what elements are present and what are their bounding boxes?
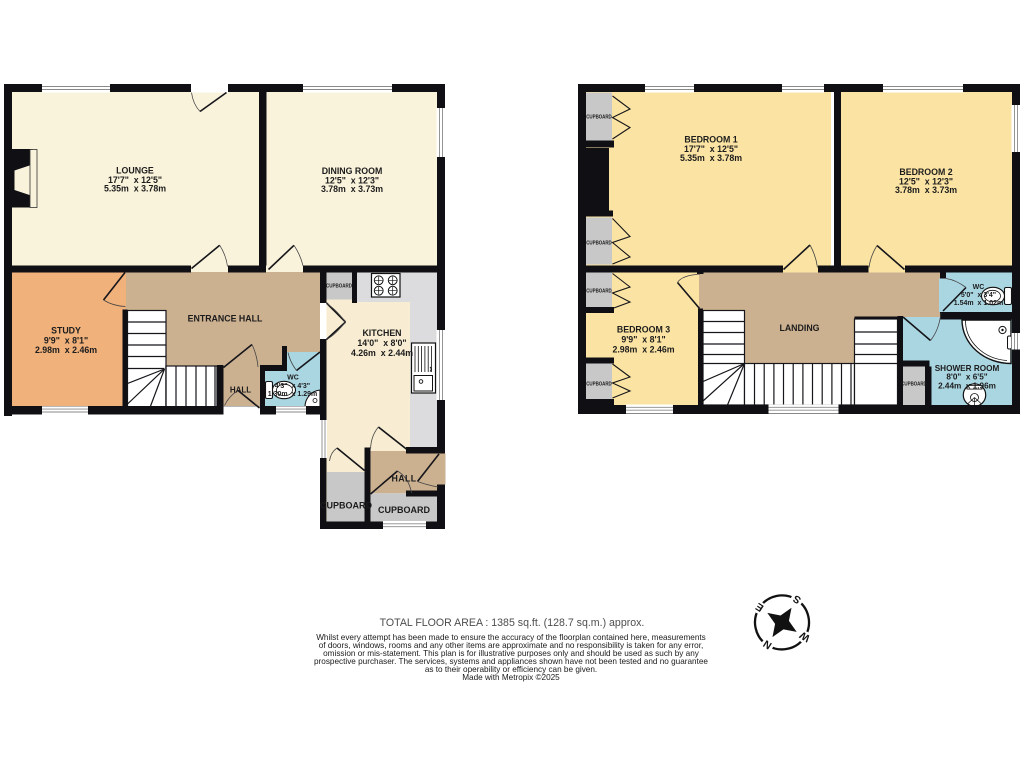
svg-text:4'3" x 4'3": 4'3" x 4'3"	[275, 383, 310, 390]
svg-text:CUPBOARD: CUPBOARD	[901, 382, 927, 388]
svg-text:9'9" x 8'1": 9'9" x 8'1"	[621, 335, 665, 345]
svg-text:3.78m x 3.73m: 3.78m x 3.73m	[895, 185, 957, 195]
svg-text:BEDROOM 3: BEDROOM 3	[617, 325, 670, 335]
svg-text:5.35m x 3.78m: 5.35m x 3.78m	[680, 153, 742, 163]
svg-text:TOTAL FLOOR AREA : 1385 sq.ft.: TOTAL FLOOR AREA : 1385 sq.ft. (128.7 sq…	[380, 617, 645, 629]
svg-text:8'0" x 6'5": 8'0" x 6'5"	[946, 373, 987, 382]
svg-text:2.98m x 2.46m: 2.98m x 2.46m	[35, 345, 97, 355]
svg-text:1.30m x 1.29m: 1.30m x 1.29m	[268, 391, 317, 398]
svg-text:CUPBOARD: CUPBOARD	[326, 284, 352, 290]
svg-text:5.35m x 3.78m: 5.35m x 3.78m	[104, 184, 166, 194]
svg-text:3.78m x 3.73m: 3.78m x 3.73m	[321, 184, 383, 194]
svg-text:5'0" x 3'4": 5'0" x 3'4"	[961, 292, 996, 299]
svg-text:CUPBOARD: CUPBOARD	[320, 501, 373, 511]
svg-text:HALL: HALL	[391, 474, 416, 484]
svg-text:LANDING: LANDING	[779, 323, 819, 333]
svg-text:2.98m x 2.46m: 2.98m x 2.46m	[612, 345, 674, 355]
svg-text:HALL: HALL	[230, 386, 251, 395]
svg-text:CUPBOARD: CUPBOARD	[586, 382, 612, 388]
svg-text:STUDY: STUDY	[51, 326, 81, 336]
svg-text:WC: WC	[287, 375, 299, 382]
svg-text:BEDROOM 1: BEDROOM 1	[684, 134, 737, 144]
svg-text:CUPBOARD: CUPBOARD	[586, 241, 612, 247]
svg-text:1.54m x 1.02m: 1.54m x 1.02m	[954, 300, 1003, 307]
svg-text:2.44m x 1.96m: 2.44m x 1.96m	[938, 382, 996, 391]
svg-text:CUPBOARD: CUPBOARD	[586, 289, 612, 295]
svg-text:Made with Metropix ©2025: Made with Metropix ©2025	[462, 673, 560, 682]
svg-text:ENTRANCE HALL: ENTRANCE HALL	[188, 314, 263, 324]
svg-text:9'9" x 8'1": 9'9" x 8'1"	[44, 335, 88, 345]
svg-text:CUPBOARD: CUPBOARD	[586, 115, 612, 121]
svg-text:4.26m x 2.44m: 4.26m x 2.44m	[351, 348, 413, 358]
svg-text:WC: WC	[973, 284, 985, 291]
svg-text:CUPBOARD: CUPBOARD	[378, 505, 431, 515]
svg-text:KITCHEN: KITCHEN	[362, 328, 401, 338]
svg-text:14'0" x 8'0": 14'0" x 8'0"	[357, 338, 406, 348]
